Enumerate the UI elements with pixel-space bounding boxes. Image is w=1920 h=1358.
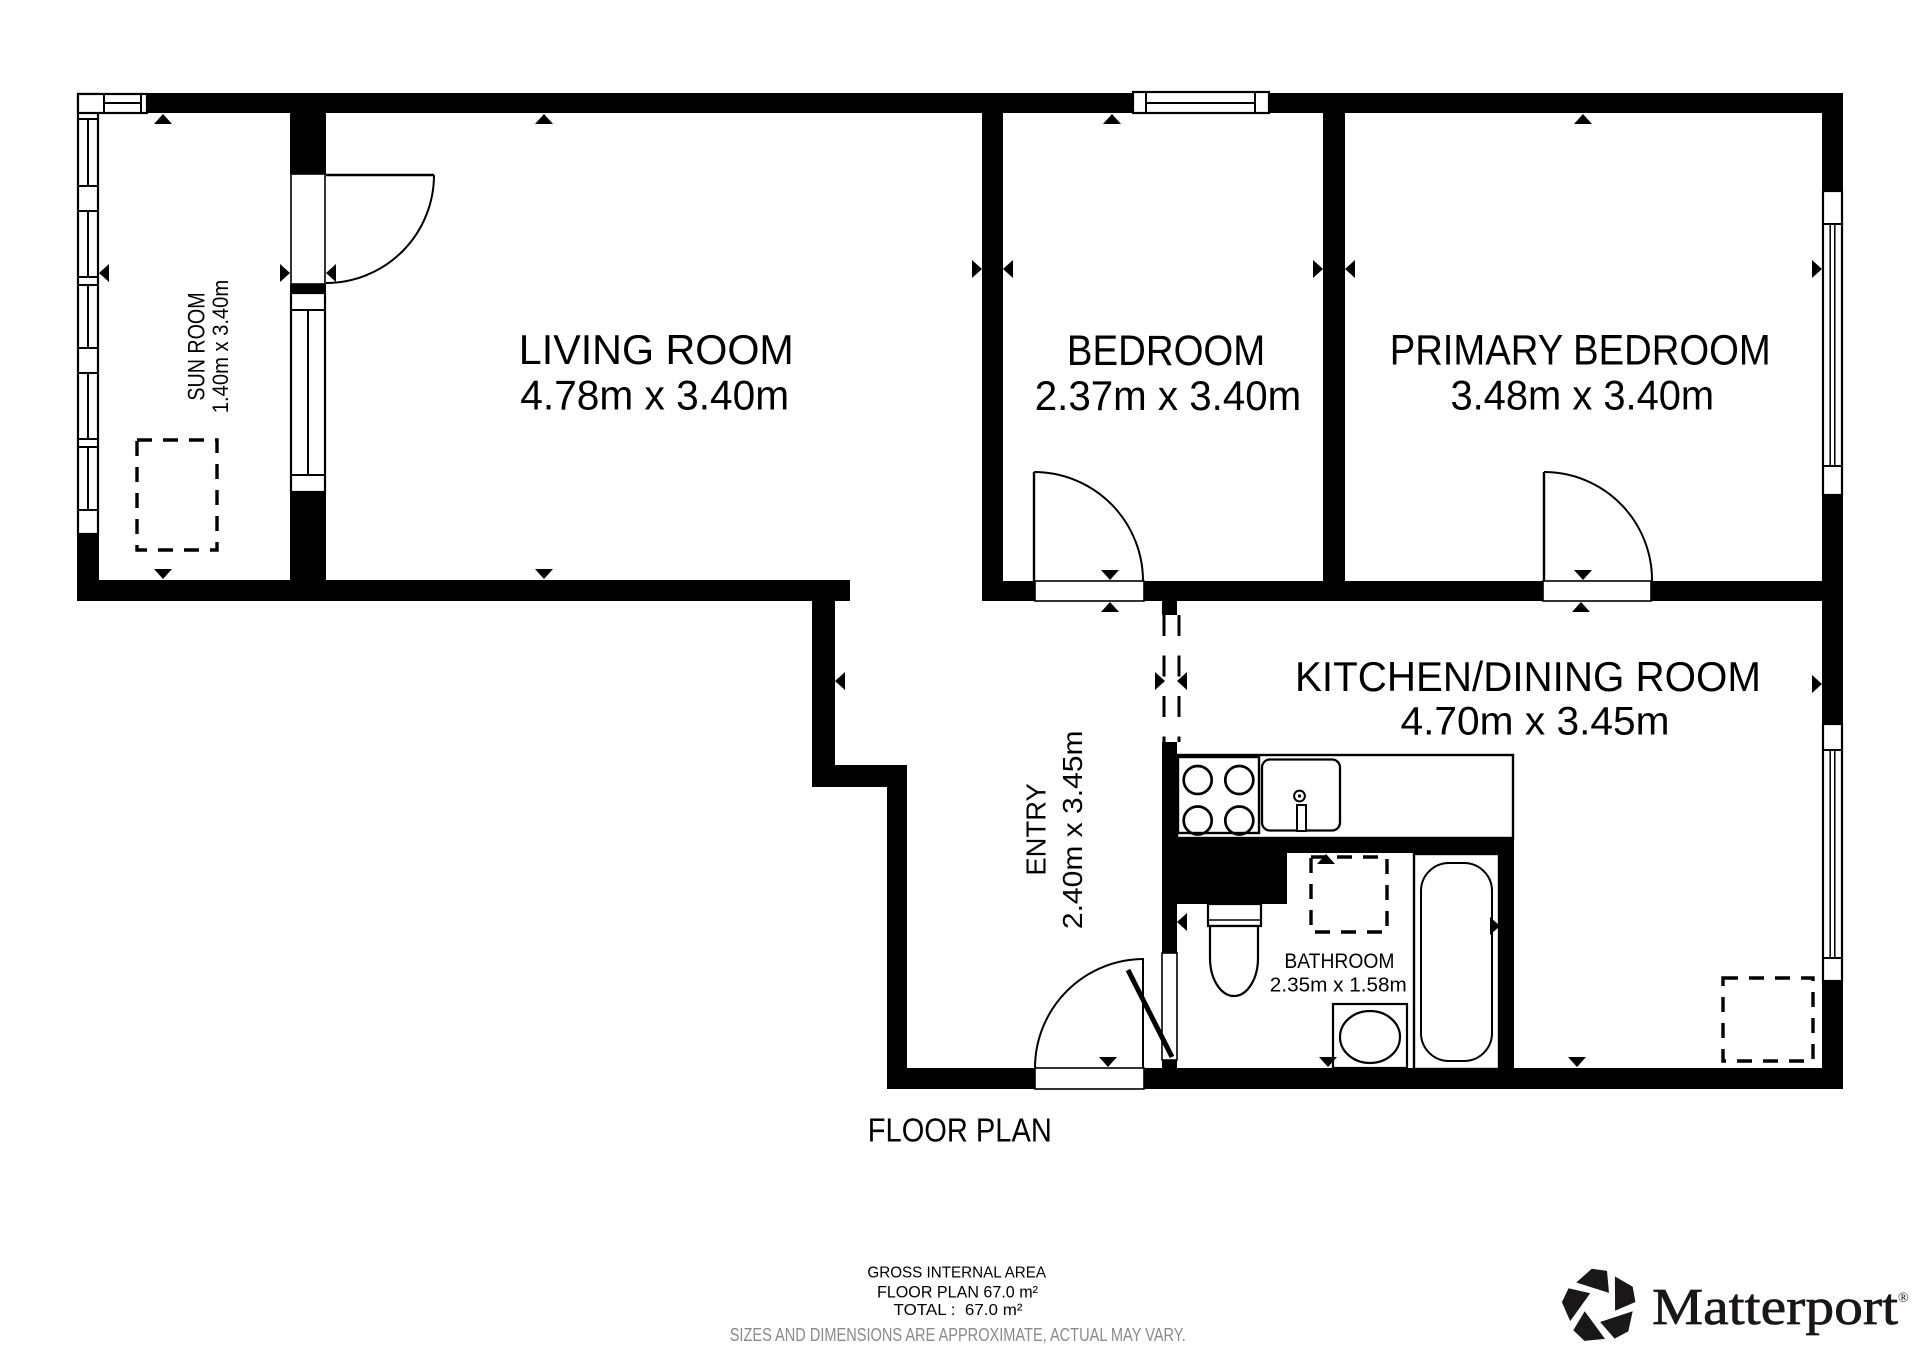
svg-text:2.40m x 3.45m: 2.40m x 3.45m — [1057, 730, 1088, 929]
svg-text:®: ® — [1898, 1291, 1909, 1306]
svg-text:4.70m x 3.45m: 4.70m x 3.45m — [1401, 700, 1670, 744]
svg-text:TOTAL : 67.0 m²: TOTAL : 67.0 m² — [894, 1302, 1024, 1319]
svg-text:BATHROOM: BATHROOM — [1284, 948, 1394, 973]
svg-text:2.35m x 1.58m: 2.35m x 1.58m — [1270, 974, 1407, 996]
svg-text:KITCHEN/DINING ROOM: KITCHEN/DINING ROOM — [1295, 653, 1761, 700]
svg-text:FLOOR PLAN 67.0 m²: FLOOR PLAN 67.0 m² — [877, 1282, 1038, 1301]
svg-text:FLOOR PLAN: FLOOR PLAN — [868, 1112, 1052, 1149]
svg-text:SUN ROOM: SUN ROOM — [184, 292, 211, 400]
svg-text:1.40m x 3.40m: 1.40m x 3.40m — [208, 280, 233, 413]
svg-text:GROSS INTERNAL AREA: GROSS INTERNAL AREA — [867, 1265, 1046, 1282]
svg-text:ENTRY: ENTRY — [1020, 783, 1051, 876]
svg-text:Matterport: Matterport — [1652, 1279, 1899, 1336]
svg-text:LIVING ROOM: LIVING ROOM — [519, 326, 794, 373]
svg-text:3.48m x 3.40m: 3.48m x 3.40m — [1450, 371, 1714, 418]
svg-text:BEDROOM: BEDROOM — [1067, 328, 1265, 375]
svg-text:SIZES AND DIMENSIONS ARE APPRO: SIZES AND DIMENSIONS ARE APPROXIMATE, AC… — [730, 1325, 1186, 1345]
svg-text:PRIMARY BEDROOM: PRIMARY BEDROOM — [1390, 328, 1771, 375]
svg-text:4.78m x 3.40m: 4.78m x 3.40m — [520, 371, 789, 418]
svg-text:2.37m x 3.40m: 2.37m x 3.40m — [1035, 372, 1302, 419]
